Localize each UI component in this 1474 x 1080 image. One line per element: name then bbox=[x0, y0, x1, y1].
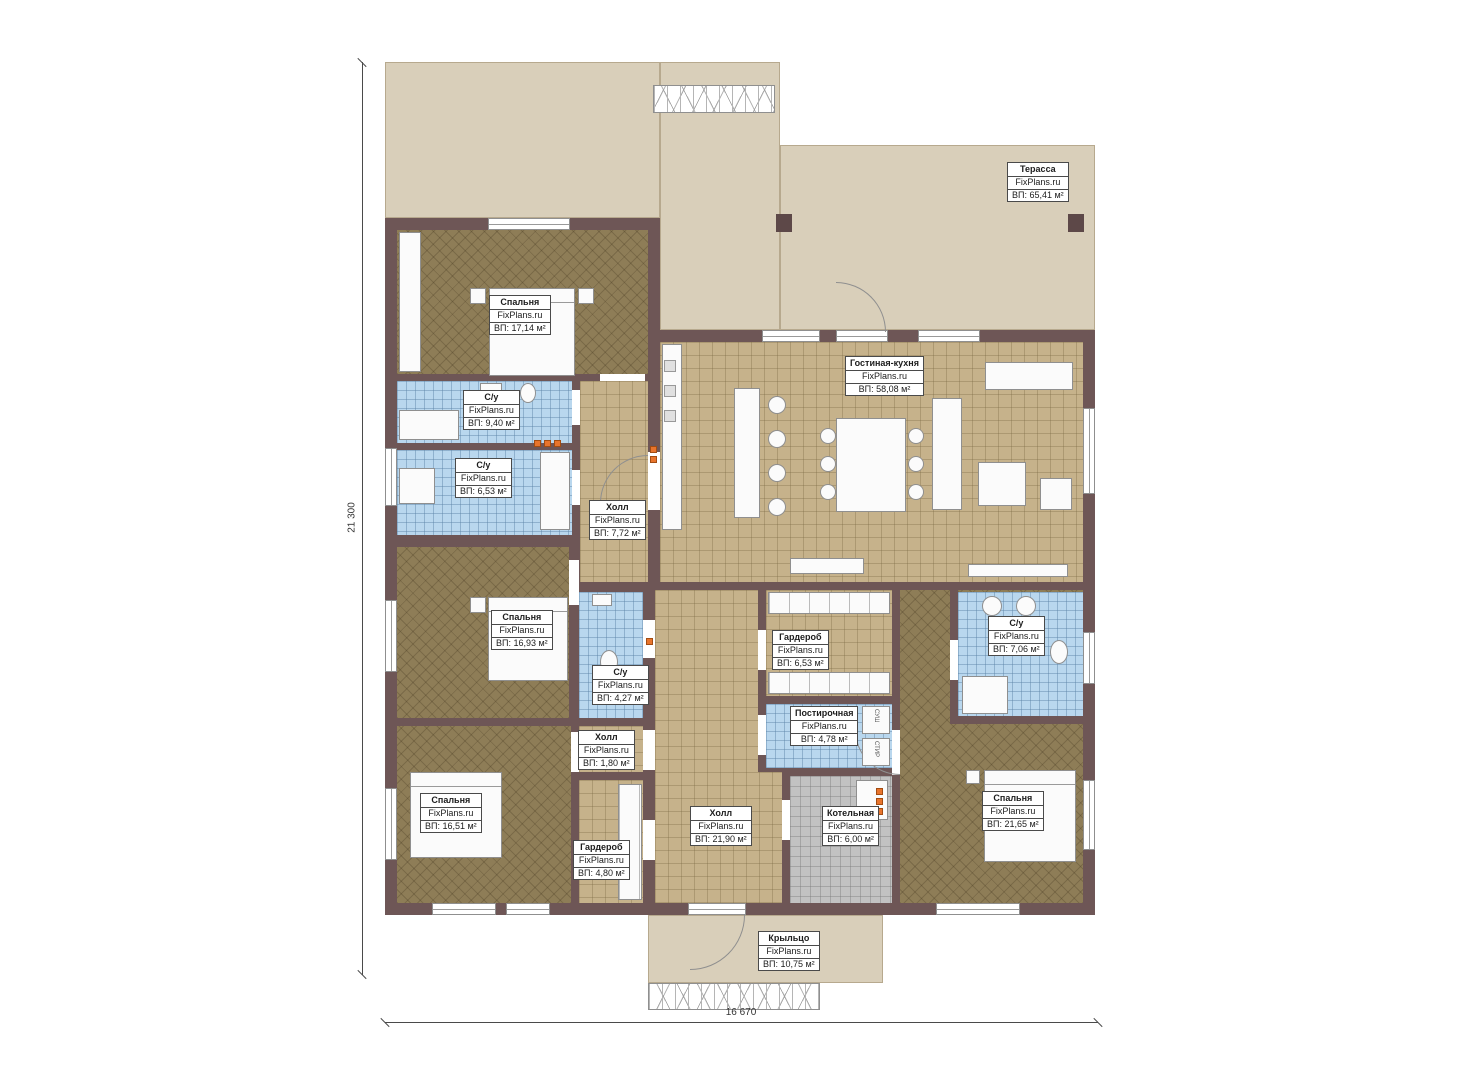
window bbox=[385, 788, 397, 860]
dimension-line-left bbox=[362, 62, 363, 975]
bar-stool bbox=[768, 430, 786, 448]
room-label-wardrobe-2: Гардероб FixPlans.ru ВП: 4,80 м² bbox=[573, 840, 630, 880]
chair bbox=[820, 428, 836, 444]
sink bbox=[1016, 596, 1036, 616]
window bbox=[918, 330, 980, 342]
room-area: ВП: 1,80 м² bbox=[579, 758, 634, 769]
chair bbox=[908, 428, 924, 444]
room-area: ВП: 10,75 м² bbox=[759, 959, 819, 970]
room-name: Холл bbox=[590, 501, 645, 515]
watermark: FixPlans.ru bbox=[846, 371, 923, 383]
sink bbox=[592, 594, 612, 606]
interior-wall bbox=[950, 716, 1083, 724]
vent-marker bbox=[544, 440, 551, 447]
room-area: ВП: 4,78 м² bbox=[791, 734, 857, 745]
door-opening bbox=[643, 820, 655, 860]
room-name: Спальня bbox=[492, 611, 552, 625]
shower bbox=[399, 468, 435, 504]
bathtub bbox=[399, 410, 459, 440]
watermark: FixPlans.ru bbox=[989, 631, 1044, 643]
kitchen-island bbox=[734, 388, 760, 518]
room-label-bathroom-2: С/у FixPlans.ru ВП: 6,53 м² bbox=[455, 458, 512, 498]
room-name: С/у bbox=[456, 459, 511, 473]
room-name: С/у bbox=[464, 391, 519, 405]
window bbox=[936, 903, 1020, 915]
vent-marker bbox=[876, 788, 883, 795]
window bbox=[1083, 408, 1095, 494]
window bbox=[762, 330, 820, 342]
watermark: FixPlans.ru bbox=[464, 405, 519, 417]
room-name: Спальня bbox=[490, 296, 550, 310]
window bbox=[385, 448, 397, 506]
door-opening bbox=[782, 800, 790, 840]
console bbox=[790, 558, 864, 574]
room-label-bathroom-4: С/у FixPlans.ru ВП: 7,06 м² bbox=[988, 616, 1045, 656]
room-area: ВП: 6,53 м² bbox=[456, 486, 511, 497]
bathtub bbox=[540, 452, 570, 530]
room-area: ВП: 4,27 м² bbox=[593, 693, 648, 704]
room-label-boiler: Котельная FixPlans.ru ВП: 6,00 м² bbox=[822, 806, 879, 846]
room-name: Гостиная-кухня bbox=[846, 357, 923, 371]
window bbox=[488, 218, 570, 230]
window bbox=[506, 903, 550, 915]
room-label-bedroom-1: Спальня FixPlans.ru ВП: 17,14 м² bbox=[489, 295, 551, 335]
room-label-hall-3: Холл FixPlans.ru ВП: 21,90 м² bbox=[690, 806, 752, 846]
bar-stool bbox=[768, 464, 786, 482]
stove-icon bbox=[664, 360, 676, 372]
terrace-post bbox=[776, 214, 792, 232]
room-area: ВП: 21,65 м² bbox=[983, 819, 1043, 830]
room-name: Холл bbox=[579, 731, 634, 745]
room-label-bathroom-1: С/у FixPlans.ru ВП: 9,40 м² bbox=[463, 390, 520, 430]
door-opening bbox=[569, 560, 579, 605]
room-area: ВП: 65,41 м² bbox=[1008, 190, 1068, 201]
room-area: ВП: 4,80 м² bbox=[574, 868, 629, 879]
oven-icon bbox=[664, 385, 676, 397]
watermark: FixPlans.ru bbox=[1008, 177, 1068, 189]
watermark: FixPlans.ru bbox=[574, 855, 629, 867]
nightstand bbox=[966, 770, 980, 784]
chair bbox=[908, 484, 924, 500]
room-label-terrace: Терасса FixPlans.ru ВП: 65,41 м² bbox=[1007, 162, 1069, 202]
room-area: ВП: 16,51 м² bbox=[421, 821, 481, 832]
room-label-bedroom-3: Спальня FixPlans.ru ВП: 16,51 м² bbox=[420, 793, 482, 833]
dimension-value-bottom: 16 670 bbox=[711, 1007, 771, 1018]
window bbox=[1083, 632, 1095, 684]
dining-table bbox=[836, 418, 906, 512]
watermark: FixPlans.ru bbox=[590, 515, 645, 527]
room-area: ВП: 9,40 м² bbox=[464, 418, 519, 429]
door-opening bbox=[758, 715, 766, 755]
room-name: Спальня bbox=[983, 792, 1043, 806]
watermark: FixPlans.ru bbox=[421, 808, 481, 820]
room-label-bathroom-3: С/у FixPlans.ru ВП: 4,27 м² bbox=[592, 665, 649, 705]
room-area: ВП: 16,93 м² bbox=[492, 638, 552, 649]
vent-marker bbox=[650, 446, 657, 453]
terrace-floor bbox=[385, 62, 660, 218]
wardrobe-shelf bbox=[768, 592, 890, 614]
nightstand bbox=[470, 288, 486, 304]
watermark: FixPlans.ru bbox=[983, 806, 1043, 818]
door-opening bbox=[643, 730, 655, 770]
room-label-laundry: Постирочная FixPlans.ru ВП: 4,78 м² bbox=[790, 706, 858, 746]
sink bbox=[982, 596, 1002, 616]
room-area: ВП: 7,06 м² bbox=[989, 644, 1044, 655]
door-opening bbox=[950, 640, 958, 680]
room-label-hall-1: Холл FixPlans.ru ВП: 7,72 м² bbox=[589, 500, 646, 540]
room-name: Спальня bbox=[421, 794, 481, 808]
toilet bbox=[1050, 640, 1068, 664]
room-label-living-kitchen: Гостиная-кухня FixPlans.ru ВП: 58,08 м² bbox=[845, 356, 924, 396]
dimension-line-bottom bbox=[385, 1022, 1098, 1023]
nightstand bbox=[470, 597, 486, 613]
toilet bbox=[520, 383, 536, 403]
room-label-bedroom-2: Спальня FixPlans.ru ВП: 16,93 м² bbox=[491, 610, 553, 650]
room-label-wardrobe-1: Гардероб FixPlans.ru ВП: 6,53 м² bbox=[772, 630, 829, 670]
room-name: Гардероб bbox=[773, 631, 828, 645]
washer: СТИР bbox=[862, 738, 890, 766]
floor-plan-canvas: СУШ СТИР Терасса FixPlans.ru ВП: 65,41 м… bbox=[0, 0, 1474, 1080]
chair bbox=[908, 456, 924, 472]
room-area: ВП: 17,14 м² bbox=[490, 323, 550, 334]
room-name: Терасса bbox=[1008, 163, 1068, 177]
entry-door bbox=[688, 903, 746, 915]
bar-stool bbox=[768, 396, 786, 414]
vent-marker bbox=[650, 456, 657, 463]
room-label-bedroom-4: Спальня FixPlans.ru ВП: 21,65 м² bbox=[982, 791, 1044, 831]
room-name: Крыльцо bbox=[759, 932, 819, 946]
vent-marker bbox=[554, 440, 561, 447]
room-name: Холл bbox=[691, 807, 751, 821]
room-label-hall-2: Холл FixPlans.ru ВП: 1,80 м² bbox=[578, 730, 635, 770]
terrace-steps bbox=[653, 85, 775, 113]
porch-steps bbox=[648, 983, 820, 1010]
dimension-value-left: 21 300 bbox=[347, 488, 358, 548]
room-name: Гардероб bbox=[574, 841, 629, 855]
room-area: ВП: 6,00 м² bbox=[823, 834, 878, 845]
sink-icon bbox=[664, 410, 676, 422]
room-name: С/у bbox=[593, 666, 648, 680]
sofa bbox=[985, 362, 1073, 390]
room-name: Котельная bbox=[823, 807, 878, 821]
room-area: ВП: 21,90 м² bbox=[691, 834, 751, 845]
door-opening bbox=[572, 470, 580, 505]
vent-marker bbox=[876, 798, 883, 805]
watermark: FixPlans.ru bbox=[759, 946, 819, 958]
terrace-post bbox=[1068, 214, 1084, 232]
chair bbox=[820, 456, 836, 472]
window bbox=[432, 903, 496, 915]
watermark: FixPlans.ru bbox=[490, 310, 550, 322]
room-area: ВП: 7,72 м² bbox=[590, 528, 645, 539]
closet bbox=[399, 232, 421, 372]
nightstand bbox=[578, 288, 594, 304]
room-name: С/у bbox=[989, 617, 1044, 631]
watermark: FixPlans.ru bbox=[791, 721, 857, 733]
sofa bbox=[932, 398, 962, 510]
window bbox=[1083, 780, 1095, 850]
washer-label: СТИР bbox=[873, 741, 879, 757]
room-area: ВП: 58,08 м² bbox=[846, 384, 923, 395]
bathtub bbox=[962, 676, 1008, 714]
room-area: ВП: 6,53 м² bbox=[773, 658, 828, 669]
vent-marker bbox=[534, 440, 541, 447]
watermark: FixPlans.ru bbox=[823, 821, 878, 833]
watermark: FixPlans.ru bbox=[456, 473, 511, 485]
tv-console bbox=[968, 564, 1068, 577]
wardrobe-shelf bbox=[768, 672, 890, 694]
watermark: FixPlans.ru bbox=[492, 625, 552, 637]
door-opening bbox=[600, 374, 645, 381]
watermark: FixPlans.ru bbox=[691, 821, 751, 833]
dryer: СУШ bbox=[862, 706, 890, 734]
room-label-porch: Крыльцо FixPlans.ru ВП: 10,75 м² bbox=[758, 931, 820, 971]
room-name: Постирочная bbox=[791, 707, 857, 721]
watermark: FixPlans.ru bbox=[773, 645, 828, 657]
coffee-table bbox=[978, 462, 1026, 506]
armchair bbox=[1040, 478, 1072, 510]
watermark: FixPlans.ru bbox=[579, 745, 634, 757]
vent-marker bbox=[646, 638, 653, 645]
window bbox=[385, 600, 397, 672]
dryer-label: СУШ bbox=[873, 709, 879, 722]
door-opening bbox=[572, 390, 580, 425]
chair bbox=[820, 484, 836, 500]
door-opening bbox=[758, 630, 766, 670]
watermark: FixPlans.ru bbox=[593, 680, 648, 692]
bar-stool bbox=[768, 498, 786, 516]
